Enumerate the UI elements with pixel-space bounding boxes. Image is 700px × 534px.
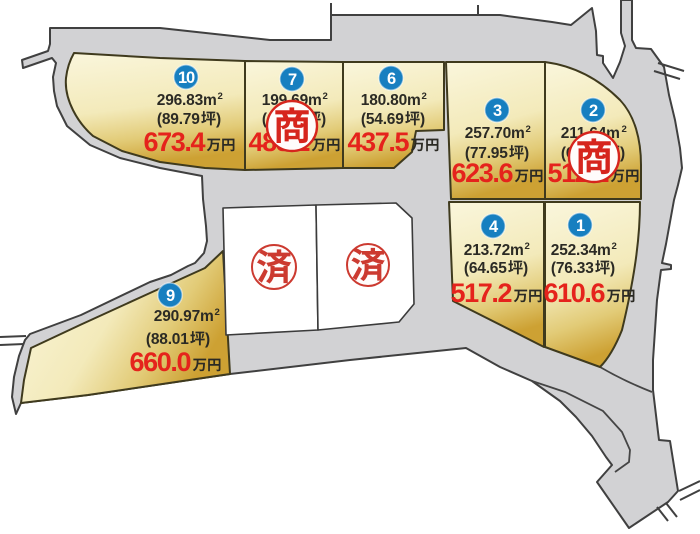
svg-text:(89.79: (89.79	[157, 111, 200, 128]
svg-text:): )	[420, 111, 425, 128]
svg-text:213.72m: 213.72m	[464, 242, 524, 259]
svg-text:2: 2	[612, 241, 617, 252]
svg-text:623.6: 623.6	[452, 158, 514, 188]
svg-text:2: 2	[622, 124, 627, 135]
svg-text:257.70m: 257.70m	[465, 125, 525, 142]
svg-text:252.34m: 252.34m	[551, 242, 611, 259]
svg-text:): )	[610, 260, 615, 277]
svg-text:9: 9	[166, 287, 175, 305]
svg-text:437.5: 437.5	[348, 127, 410, 157]
svg-text:(64.65: (64.65	[464, 260, 507, 277]
svg-text:2: 2	[218, 91, 223, 102]
svg-text:(76.33: (76.33	[551, 260, 594, 277]
svg-text:6: 6	[387, 70, 396, 88]
svg-text:2: 2	[526, 124, 531, 135]
svg-text:(54.69: (54.69	[361, 111, 404, 128]
svg-text:2: 2	[323, 91, 328, 102]
svg-text:10: 10	[178, 69, 195, 87]
svg-text:296.83m: 296.83m	[157, 92, 217, 109]
svg-text:): )	[321, 111, 326, 128]
svg-text:): )	[205, 331, 210, 348]
svg-text:2: 2	[422, 91, 427, 102]
svg-text:290.97m: 290.97m	[154, 308, 214, 325]
svg-text:): )	[620, 145, 625, 162]
svg-text:2: 2	[215, 307, 220, 318]
svg-text:610.6: 610.6	[544, 278, 606, 308]
svg-text:673.4: 673.4	[144, 127, 206, 157]
svg-text:3: 3	[493, 102, 502, 120]
svg-text:2: 2	[589, 102, 598, 120]
svg-text:): )	[523, 260, 528, 277]
svg-text:180.80m: 180.80m	[361, 92, 421, 109]
svg-text:1: 1	[576, 217, 585, 235]
svg-text:2: 2	[525, 241, 530, 252]
svg-text:517.2: 517.2	[451, 278, 512, 308]
svg-text:7: 7	[288, 71, 297, 89]
svg-text:): )	[524, 145, 529, 162]
svg-text:): )	[216, 111, 221, 128]
svg-text:660.0: 660.0	[130, 347, 191, 377]
svg-text:(88.01: (88.01	[146, 331, 189, 348]
